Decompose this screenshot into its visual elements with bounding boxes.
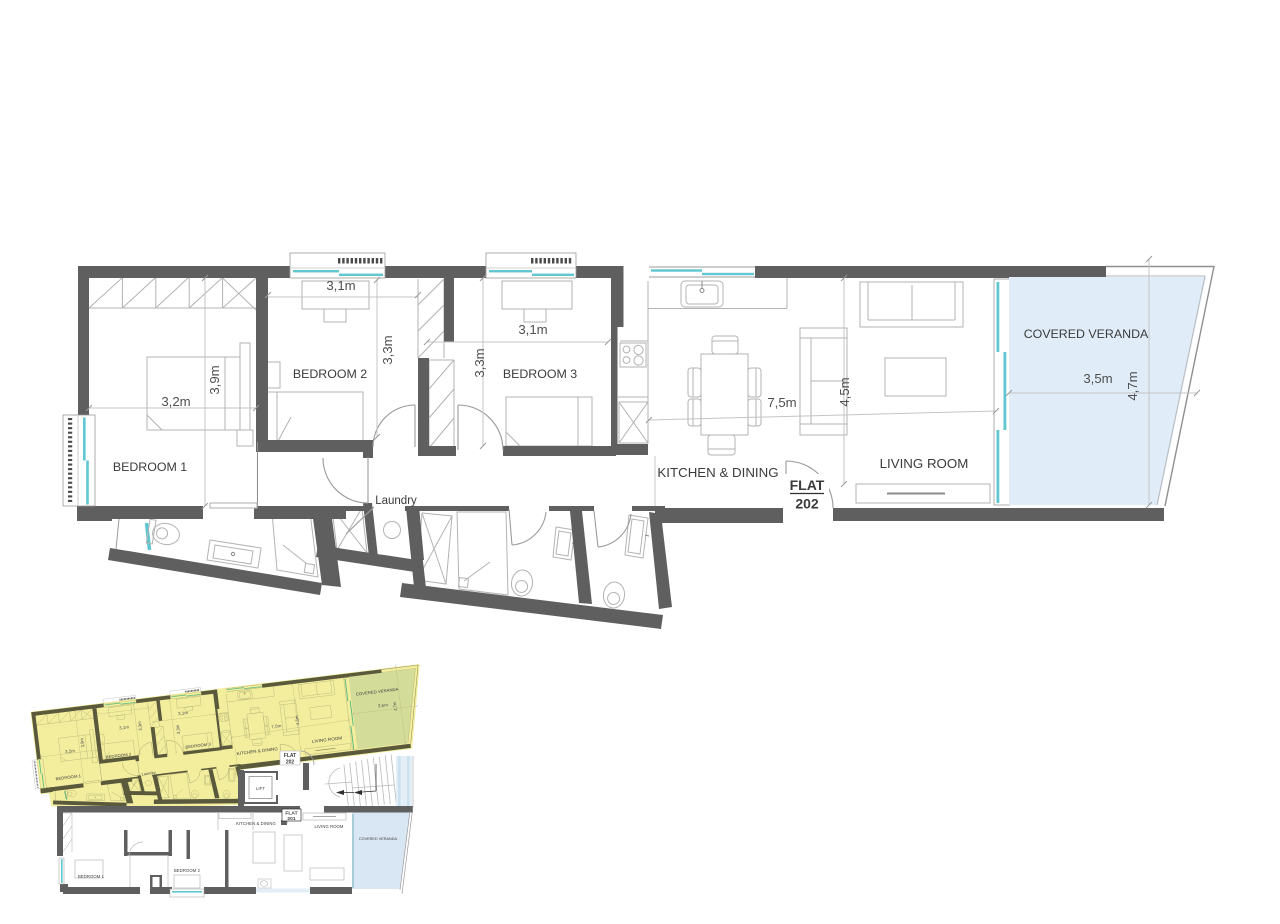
svg-text:FLAT: FLAT <box>285 811 297 817</box>
svg-text:7,5m: 7,5m <box>767 395 796 410</box>
svg-text:Laundry: Laundry <box>375 495 417 507</box>
svg-text:3,3m: 3,3m <box>380 335 395 364</box>
svg-text:BEDROOM 1: BEDROOM 1 <box>78 874 105 879</box>
svg-text:3,1m: 3,1m <box>518 322 547 337</box>
svg-text:3,2m: 3,2m <box>161 394 190 409</box>
svg-text:FLAT: FLAT <box>284 753 296 759</box>
svg-text:BEDROOM 2: BEDROOM 2 <box>174 868 201 873</box>
svg-text:4,7m: 4,7m <box>1125 371 1140 400</box>
svg-text:202: 202 <box>795 496 819 512</box>
svg-text:LIVING ROOM: LIVING ROOM <box>314 824 343 829</box>
svg-text:LIVING ROOM: LIVING ROOM <box>880 456 969 471</box>
svg-text:BEDROOM 2: BEDROOM 2 <box>293 367 367 381</box>
svg-text:FLAT: FLAT <box>790 477 825 493</box>
svg-text:BEDROOM 1: BEDROOM 1 <box>113 460 187 474</box>
svg-text:3,5m: 3,5m <box>1083 371 1112 386</box>
svg-text:KITCHEN & DINING: KITCHEN & DINING <box>236 821 276 826</box>
svg-text:201: 201 <box>287 816 295 822</box>
svg-text:3,1m: 3,1m <box>326 278 355 293</box>
svg-text:4,5m: 4,5m <box>837 377 852 406</box>
svg-text:3,3m: 3,3m <box>472 348 487 377</box>
svg-text:COVERED VERANDA: COVERED VERANDA <box>1024 327 1149 341</box>
svg-text:202: 202 <box>286 760 295 766</box>
svg-text:LIFT: LIFT <box>256 786 265 791</box>
svg-text:COVERED VERANDA: COVERED VERANDA <box>359 837 398 841</box>
svg-text:BEDROOM 3: BEDROOM 3 <box>503 367 577 381</box>
svg-text:KITCHEN & DINING: KITCHEN & DINING <box>657 465 778 480</box>
svg-text:3,9m: 3,9m <box>207 365 222 394</box>
